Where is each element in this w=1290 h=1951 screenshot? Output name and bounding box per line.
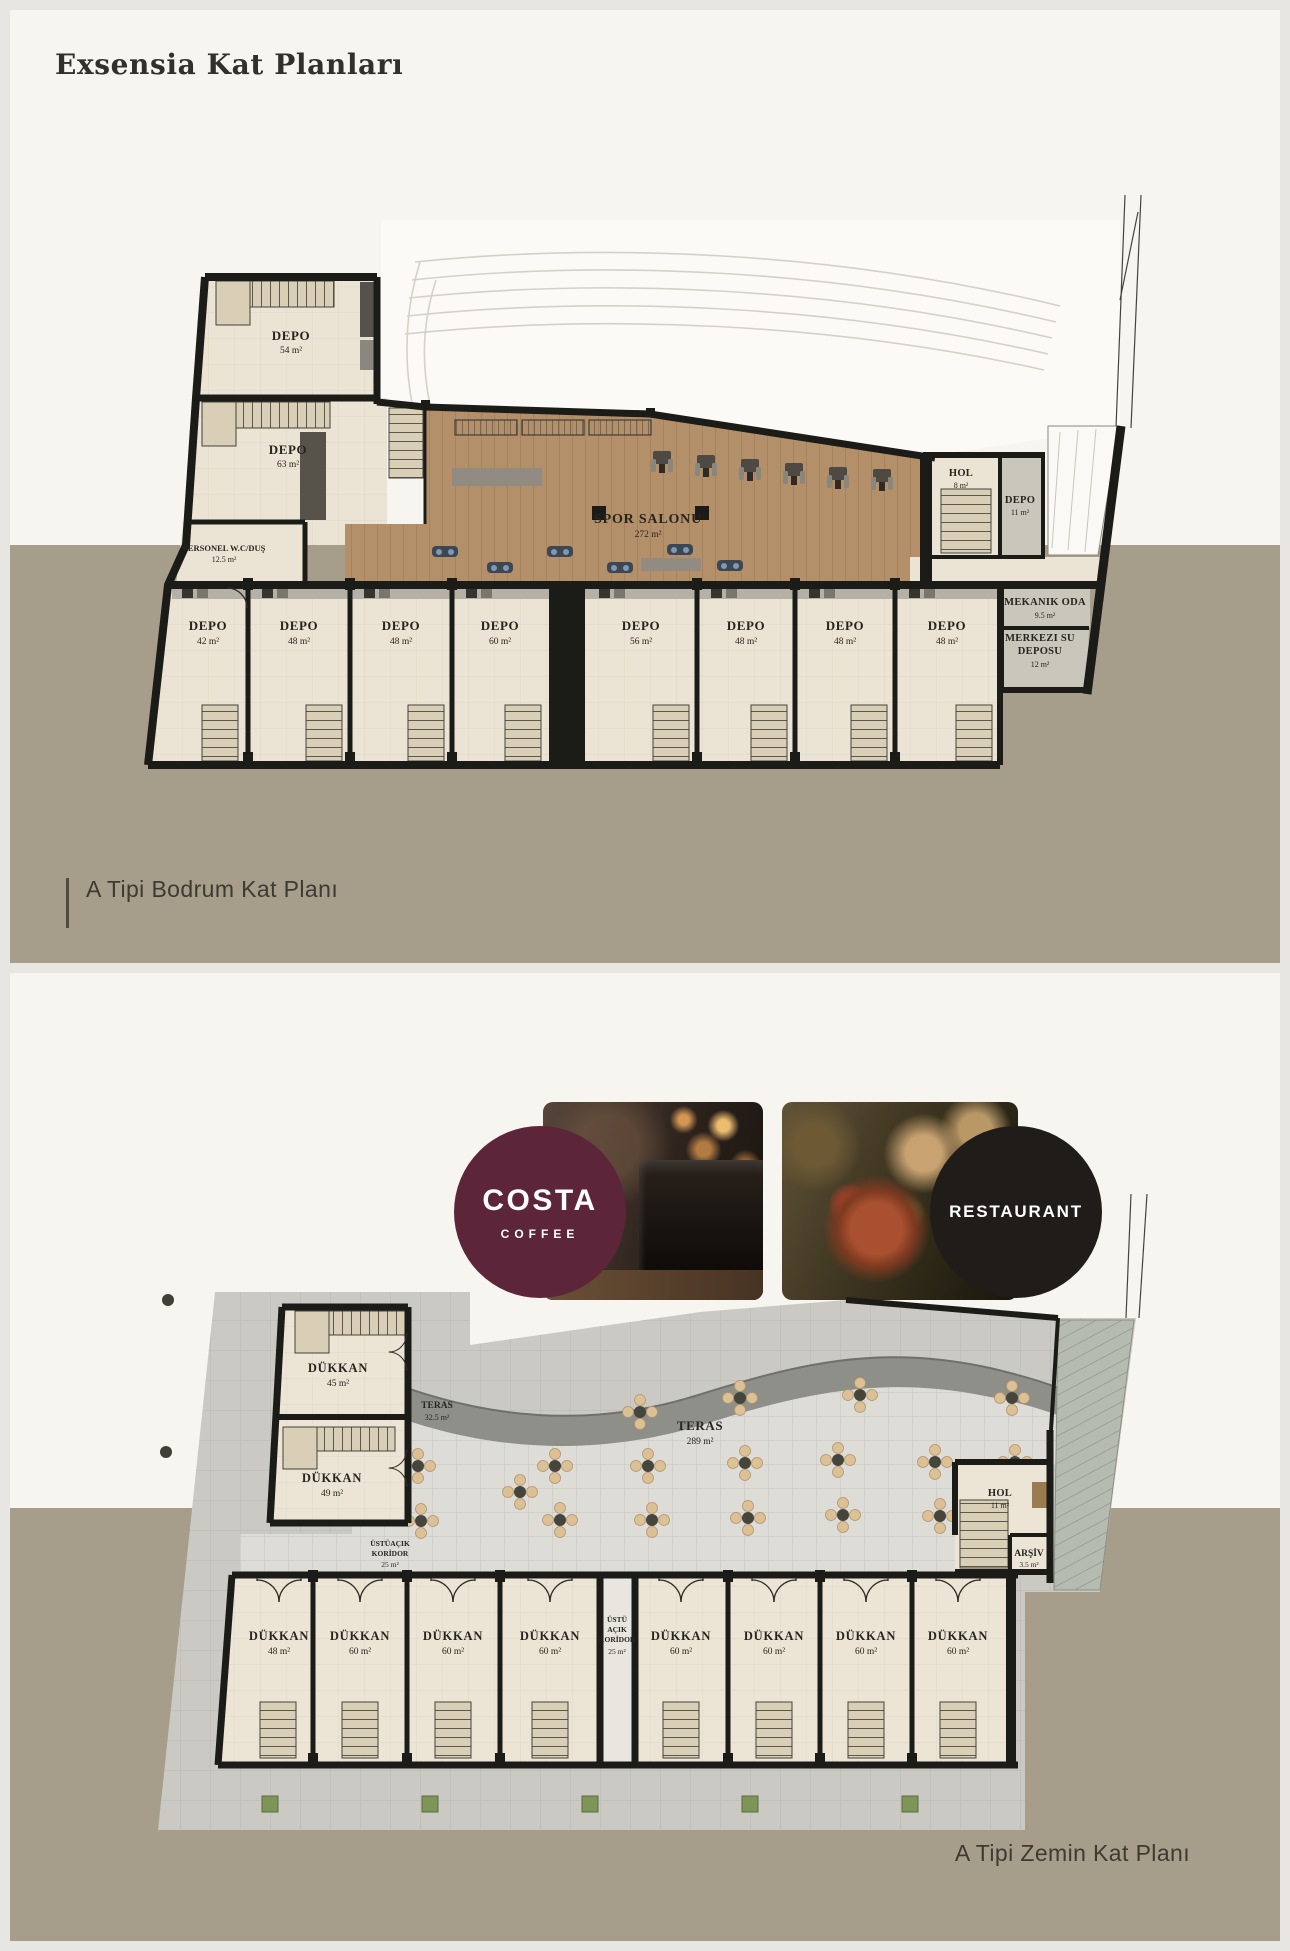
costa-label: COSTA <box>482 1184 597 1218</box>
page-title: Exsensia Kat Planları <box>55 48 403 81</box>
restaurant-label: RESTAURANT <box>949 1202 1083 1222</box>
ground-floor-ground-band <box>10 1508 1280 1941</box>
ground-floor-caption: A Tipi Zemin Kat Planı <box>860 1840 1190 1867</box>
caption-accent-line <box>66 878 69 928</box>
costa-coffee-badge: COSTA COFFEE <box>454 1126 626 1298</box>
coffee-label: COFFEE <box>501 1227 580 1241</box>
brochure-page: Exsensia Kat Planları COSTA COFFEE RESTA… <box>0 0 1290 1951</box>
restaurant-badge: RESTAURANT <box>930 1126 1102 1298</box>
basement-caption: A Tipi Bodrum Kat Planı <box>86 876 338 903</box>
